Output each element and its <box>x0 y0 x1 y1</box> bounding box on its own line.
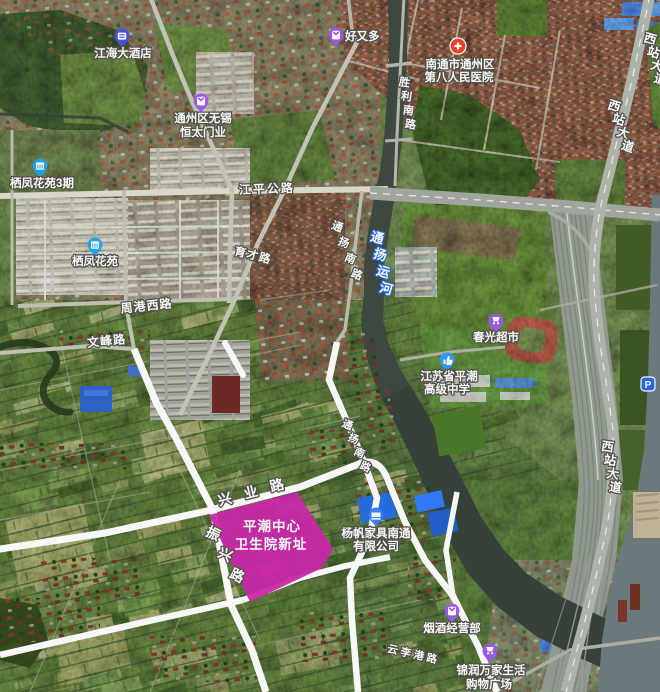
svg-text:锦润万家生活: 锦润万家生活 <box>457 663 526 677</box>
svg-text:道: 道 <box>608 479 623 496</box>
svg-text:栖凤花苑3期: 栖凤花苑3期 <box>10 176 74 190</box>
svg-text:恒太门业: 恒太门业 <box>180 125 226 139</box>
svg-text:平潮中心: 平潮中心 <box>243 518 301 534</box>
svg-text:栖凤花苑: 栖凤花苑 <box>72 254 118 268</box>
svg-text:利: 利 <box>400 88 413 103</box>
svg-text:购物广场: 购物广场 <box>466 677 512 691</box>
svg-text:第八人民医院: 第八人民医院 <box>425 70 494 84</box>
svg-text:P: P <box>645 380 652 391</box>
svg-text:江平公路: 江平公路 <box>239 180 296 197</box>
svg-text:杨帆家具南通: 杨帆家具南通 <box>342 526 411 540</box>
svg-text:南: 南 <box>402 102 415 117</box>
svg-text:卫生院新址: 卫生院新址 <box>235 536 308 552</box>
svg-text:高级中学: 高级中学 <box>424 382 470 396</box>
svg-text:烟酒经营部: 烟酒经营部 <box>423 621 481 635</box>
svg-text:南通市通州区: 南通市通州区 <box>426 57 495 71</box>
svg-text:有限公司: 有限公司 <box>353 539 399 553</box>
svg-text:春光超市: 春光超市 <box>473 330 519 344</box>
svg-text:江苏省平潮: 江苏省平潮 <box>420 369 478 383</box>
svg-text:通州区无锡: 通州区无锡 <box>174 111 232 125</box>
svg-text:好又多: 好又多 <box>344 29 380 43</box>
svg-text:江海大酒店: 江海大酒店 <box>94 46 152 60</box>
